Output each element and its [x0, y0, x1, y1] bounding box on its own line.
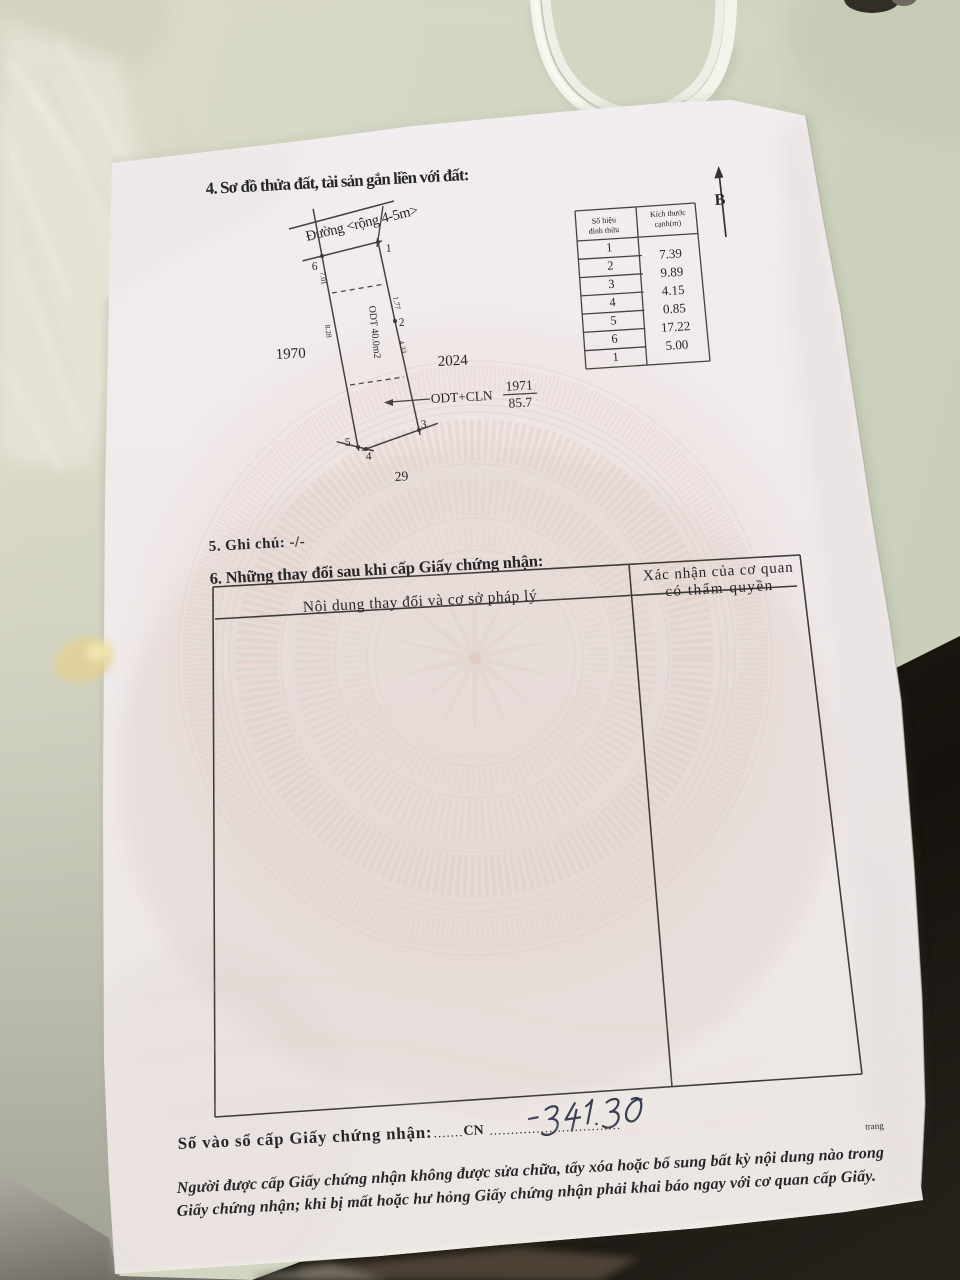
- svg-text:4: 4: [366, 451, 373, 463]
- svg-text:7.01: 7.01: [318, 271, 329, 285]
- svg-text:cạnh(m): cạnh(m): [654, 218, 681, 229]
- svg-text:5: 5: [345, 437, 352, 449]
- svg-text:Số hiệu: Số hiệu: [591, 215, 616, 225]
- svg-text:4.15: 4.15: [661, 282, 685, 298]
- svg-text:1: 1: [612, 350, 619, 364]
- svg-text:0.85: 0.85: [663, 300, 687, 316]
- svg-text:6: 6: [611, 332, 618, 346]
- svg-text:đỉnh thửa: đỉnh thửa: [588, 225, 619, 236]
- svg-text:.......: .......: [433, 1124, 463, 1140]
- svg-text:2024: 2024: [437, 352, 468, 370]
- svg-text:17.22: 17.22: [661, 318, 691, 335]
- svg-text:CN: CN: [463, 1123, 484, 1139]
- svg-text:2: 2: [399, 317, 406, 329]
- svg-text:85.7: 85.7: [508, 394, 533, 410]
- svg-text:3: 3: [608, 277, 615, 291]
- svg-text:1970: 1970: [275, 345, 306, 363]
- svg-text:29: 29: [394, 468, 409, 484]
- svg-text:B: B: [714, 191, 726, 209]
- svg-text:6: 6: [312, 261, 319, 273]
- svg-text:8.28: 8.28: [323, 324, 334, 338]
- svg-text:1: 1: [386, 243, 393, 255]
- svg-text:1: 1: [606, 240, 613, 254]
- svg-text:5.00: 5.00: [665, 337, 689, 353]
- svg-text:trang: trang: [865, 1120, 885, 1131]
- svg-text:9.89: 9.89: [660, 264, 684, 280]
- svg-text:7.39: 7.39: [659, 245, 683, 261]
- svg-text:3: 3: [421, 419, 428, 431]
- svg-text:5: 5: [610, 313, 617, 327]
- svg-text:2: 2: [607, 258, 614, 272]
- svg-text:1971: 1971: [505, 377, 533, 393]
